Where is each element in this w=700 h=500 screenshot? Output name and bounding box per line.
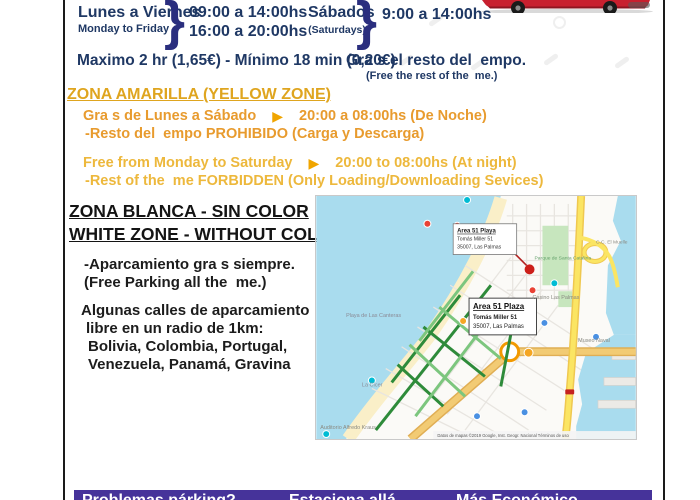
map-marker-plaza-city: 35007, Las Palmas [473, 324, 524, 330]
map-label-casino: Casino Las Palmas [533, 295, 580, 301]
saturdays-time: 9:00 a 14:00hs [382, 6, 491, 24]
free-streets-line: Bolivia, Colombia, Portugal, [88, 338, 287, 355]
map-label-beach: Playa de Las Canteras [346, 313, 401, 319]
brace-icon: } [356, 0, 377, 48]
map-attribution-text: Datos de mapas ©2019 Google, Inst. Geogr… [437, 433, 569, 438]
yellow-zone-en-free: Free from Monday to Saturday [83, 155, 292, 171]
weekdays-time-2: 16:00 a 20:00hs [189, 23, 307, 41]
map-marker-playa-street: Tomás Miller 51 [457, 237, 493, 243]
city-map-image: Area 51 Playa Tomás Miller 51 35007, Las… [315, 195, 637, 440]
white-zone-title-es: ZONA BLANCA - SIN COLOR [69, 201, 309, 222]
flyer-page: Lunes a Viernes Monday to Friday } 09:00… [0, 0, 700, 500]
map-svg: Area 51 Playa Tomás Miller 51 35007, Las… [316, 196, 636, 439]
pricing-free-rest-es: Gra s el resto del empo. [346, 52, 526, 70]
arrow-right-icon: ▶ [308, 156, 319, 170]
yellow-zone-en-hours: 20:00 to 08:00hs (At night) [335, 155, 516, 171]
map-label-naval: Museo Naval [578, 338, 610, 344]
watermark-mark [543, 53, 559, 66]
arrow-right-icon: ▶ [272, 109, 283, 123]
map-label-mall: C.C. El Muelle [596, 240, 628, 246]
white-zone-title-en: WHITE ZONE - WITHOUT COLOUR [69, 224, 357, 245]
yellow-zone-es-rest: -Resto del empo PROHIBIDO (Carga y Desca… [85, 126, 424, 142]
map-marker-playa-city: 35007, Las Palmas [457, 245, 501, 251]
free-streets-line: Algunas calles de aparcamiento [81, 302, 309, 319]
pricing-free-rest-en: (Free the rest of the me.) [366, 70, 497, 82]
brace-icon: } [164, 0, 185, 48]
map-road-badge [565, 389, 574, 394]
red-car-image [478, 0, 656, 13]
map-marker-plaza-street: Tomás Miller 51 [473, 315, 518, 321]
footer-bar: Problemas párking? Estaciona allá Más Ec… [74, 490, 652, 500]
yellow-zone-es-hours: 20:00 a 08:00hs (De Noche) [299, 108, 487, 124]
yellow-zone-en-rest: -Rest of the me FORBIDDEN (Only Loading/… [85, 173, 543, 189]
map-label-park: Parque de Santa Catalina [535, 255, 592, 261]
white-zone-free-es: -Aparcamiento gra s siempre. [84, 256, 295, 273]
watermark-mark [614, 56, 630, 69]
white-zone-free-en: (Free Parking all the me.) [84, 274, 267, 291]
right-border-line [663, 0, 665, 500]
free-streets-line: libre en un radio de 1km: [86, 320, 264, 337]
footer-right-text: Más Económico [456, 492, 578, 500]
map-marker-playa-title: Area 51 Playa [457, 229, 496, 235]
free-streets-line: Venezuela, Panamá, Gravina [88, 356, 291, 373]
map-label-cicer: La Cícer [362, 382, 383, 388]
yellow-zone-es-free: Gra s de Lunes a Sábado [83, 108, 256, 124]
map-marker-plaza-title: Area 51 Plaza [473, 302, 525, 311]
weekdays-time-1: 09:00 a 14:00hs [189, 4, 307, 22]
map-label-auditorium: Auditorio Alfredo Kraus [320, 425, 376, 431]
left-border-line [63, 0, 65, 500]
watermark-mark [553, 16, 566, 29]
yellow-zone-title: ZONA AMARILLA (YELLOW ZONE) [67, 86, 331, 104]
weekdays-sublabel: Monday to Friday [78, 23, 164, 35]
footer-center-text: Estaciona allá [289, 492, 396, 500]
footer-left-text: Problemas párking? [82, 492, 236, 500]
